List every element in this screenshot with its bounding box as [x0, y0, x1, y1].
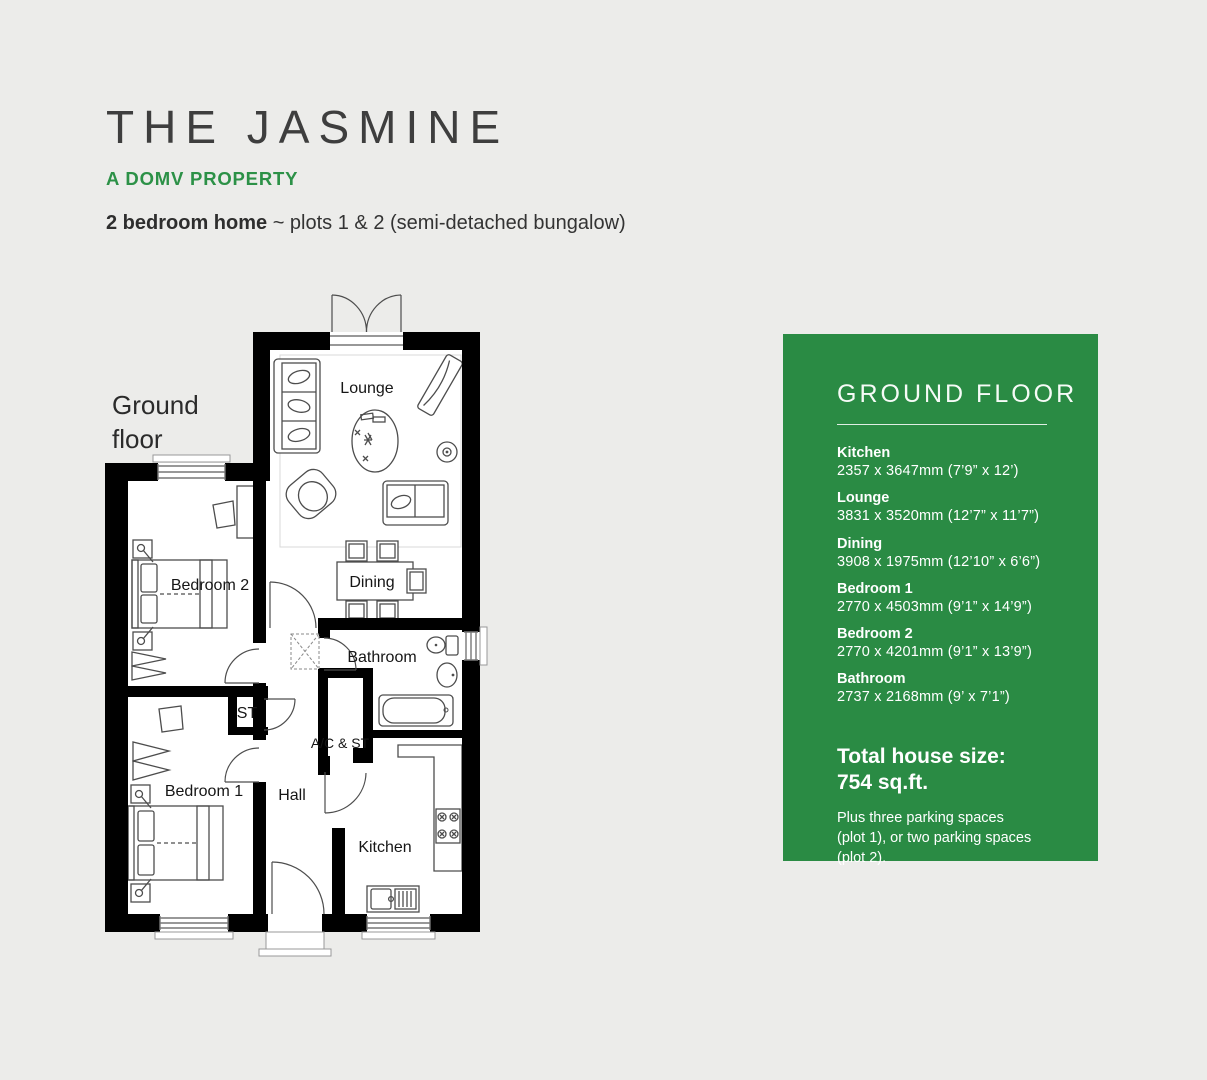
- room-spec-name: Bedroom 2: [837, 625, 1068, 643]
- room-spec-bathroom: Bathroom 2737 x 2168mm (9’ x 7’1”): [837, 670, 1068, 706]
- room-spec-dims: 2770 x 4201mm (9’1” x 13’9”): [837, 643, 1068, 661]
- bed-2: [132, 560, 227, 628]
- parking-note: Plus three parking spaces (plot 1), or t…: [837, 808, 1068, 868]
- loveseat: [383, 481, 448, 525]
- page-title: THE JASMINE: [106, 100, 626, 154]
- basin: [437, 663, 457, 687]
- room-spec-dims: 2737 x 2168mm (9’ x 7’1”): [837, 688, 1068, 706]
- label-bedroom1: Bedroom 1: [165, 783, 243, 800]
- room-spec-dims: 2357 x 3647mm (7’9” x 12’): [837, 462, 1068, 480]
- floorplan-svg: Lounge Dining Bedroom 2 Bathroom ST A/C …: [95, 285, 500, 975]
- room-spec-name: Bathroom: [837, 670, 1068, 688]
- ground-floor-panel: GROUND FLOOR Kitchen 2357 x 3647mm (7’9”…: [783, 334, 1098, 861]
- room-spec-bedroom2: Bedroom 2 2770 x 4201mm (9’1” x 13’9”): [837, 625, 1068, 661]
- parking-line: Plus three parking spaces: [837, 808, 1068, 828]
- label-ac-st: A/C & ST: [311, 735, 370, 751]
- brand-tagline: A DOMV PROPERTY: [106, 168, 626, 190]
- room-spec-lounge: Lounge 3831 x 3520mm (12’7” x 11’7”): [837, 489, 1068, 525]
- room-spec-name: Dining: [837, 535, 1068, 553]
- room-spec-dims: 2770 x 4503mm (9’1” x 14’9”): [837, 598, 1068, 616]
- room-spec-dims: 3908 x 1975mm (12’10” x 6’6”): [837, 553, 1068, 571]
- bathtub: [379, 695, 453, 726]
- property-subtitle: 2 bedroom home ~ plots 1 & 2 (semi-detac…: [106, 212, 626, 235]
- bed-1: [128, 806, 223, 880]
- total-value: 754 sq.ft.: [837, 770, 1068, 796]
- room-spec-name: Bedroom 1: [837, 580, 1068, 598]
- label-kitchen: Kitchen: [358, 839, 411, 856]
- room-spec-name: Kitchen: [837, 444, 1068, 462]
- kitchen-sink: [367, 886, 419, 912]
- room-spec-dining: Dining 3908 x 1975mm (12’10” x 6’6”): [837, 535, 1068, 571]
- sofa: [274, 359, 320, 453]
- panel-heading: GROUND FLOOR: [837, 380, 1068, 409]
- room-spec-bedroom1: Bedroom 1 2770 x 4503mm (9’1” x 14’9”): [837, 580, 1068, 616]
- chair-1: [159, 706, 183, 732]
- label-bedroom2: Bedroom 2: [171, 577, 249, 594]
- label-hall: Hall: [278, 787, 306, 804]
- label-lounge: Lounge: [340, 380, 393, 397]
- room-spec-name: Lounge: [837, 489, 1068, 507]
- parking-line: (plot 2).: [837, 848, 1068, 868]
- room-spec-kitchen: Kitchen 2357 x 3647mm (7’9” x 12’): [837, 444, 1068, 480]
- desk-chair: [213, 501, 235, 528]
- total-house-size: Total house size: 754 sq.ft.: [837, 744, 1068, 796]
- total-label: Total house size:: [837, 744, 1068, 770]
- round-speaker: [437, 442, 457, 462]
- label-bathroom: Bathroom: [347, 649, 416, 666]
- subtitle-bold: 2 bedroom home: [106, 212, 267, 234]
- label-st: ST: [237, 705, 258, 722]
- room-spec-dims: 3831 x 3520mm (12’7” x 11’7”): [837, 507, 1068, 525]
- panel-divider: [837, 424, 1047, 425]
- floorplan: Lounge Dining Bedroom 2 Bathroom ST A/C …: [95, 285, 500, 975]
- subtitle-rest: ~ plots 1 & 2 (semi-detached bungalow): [267, 212, 626, 234]
- label-dining: Dining: [349, 574, 394, 591]
- header: THE JASMINE A DOMV PROPERTY 2 bedroom ho…: [106, 100, 626, 235]
- airing-cupboard: [291, 634, 319, 669]
- parking-line: (plot 1), or two parking spaces: [837, 828, 1068, 848]
